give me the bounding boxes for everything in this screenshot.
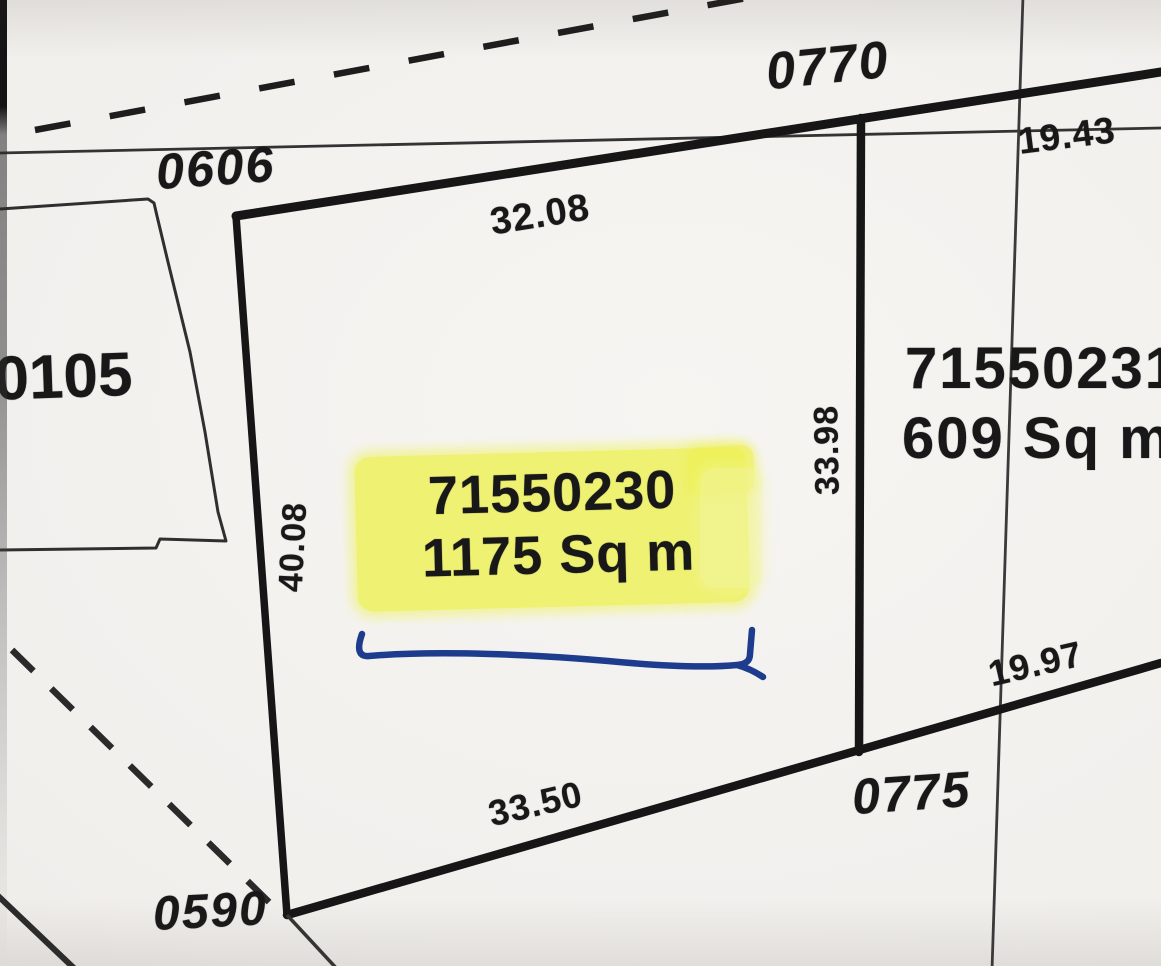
road-number-bottom-left: 0590 (152, 885, 269, 939)
dashed-road-line-top (35, 0, 768, 130)
east-parcel-area: 609 Sq m (902, 410, 1161, 468)
highlighted-parcel-id: 71550230 (427, 463, 677, 523)
east-parcel-id: 71550231 (905, 340, 1161, 398)
boundary-continuation-line (287, 915, 338, 966)
dimension-right: 33.98 (809, 405, 845, 496)
west-parcel-id: 50105 (0, 344, 133, 412)
highlighted-parcel-area: 1175 Sq m (421, 524, 696, 585)
cadastral-survey-map: 0606 0770 0775 0590 32.08 19.43 19.97 33… (0, 0, 1161, 966)
parcel-boundary-bottom (287, 663, 1161, 915)
dimension-left: 40.08 (274, 501, 313, 593)
road-number-top-left: 0606 (154, 139, 276, 197)
road-number-top: 0770 (764, 34, 892, 99)
page-edge-shadow (0, 0, 7, 966)
dashed-road-line-bottom-left (12, 650, 270, 903)
road-number-bottom: 0775 (850, 764, 972, 822)
blue-pen-underline (359, 630, 763, 677)
parcel-boundary-right (859, 118, 861, 752)
bottom-left-corner-line (0, 892, 78, 966)
